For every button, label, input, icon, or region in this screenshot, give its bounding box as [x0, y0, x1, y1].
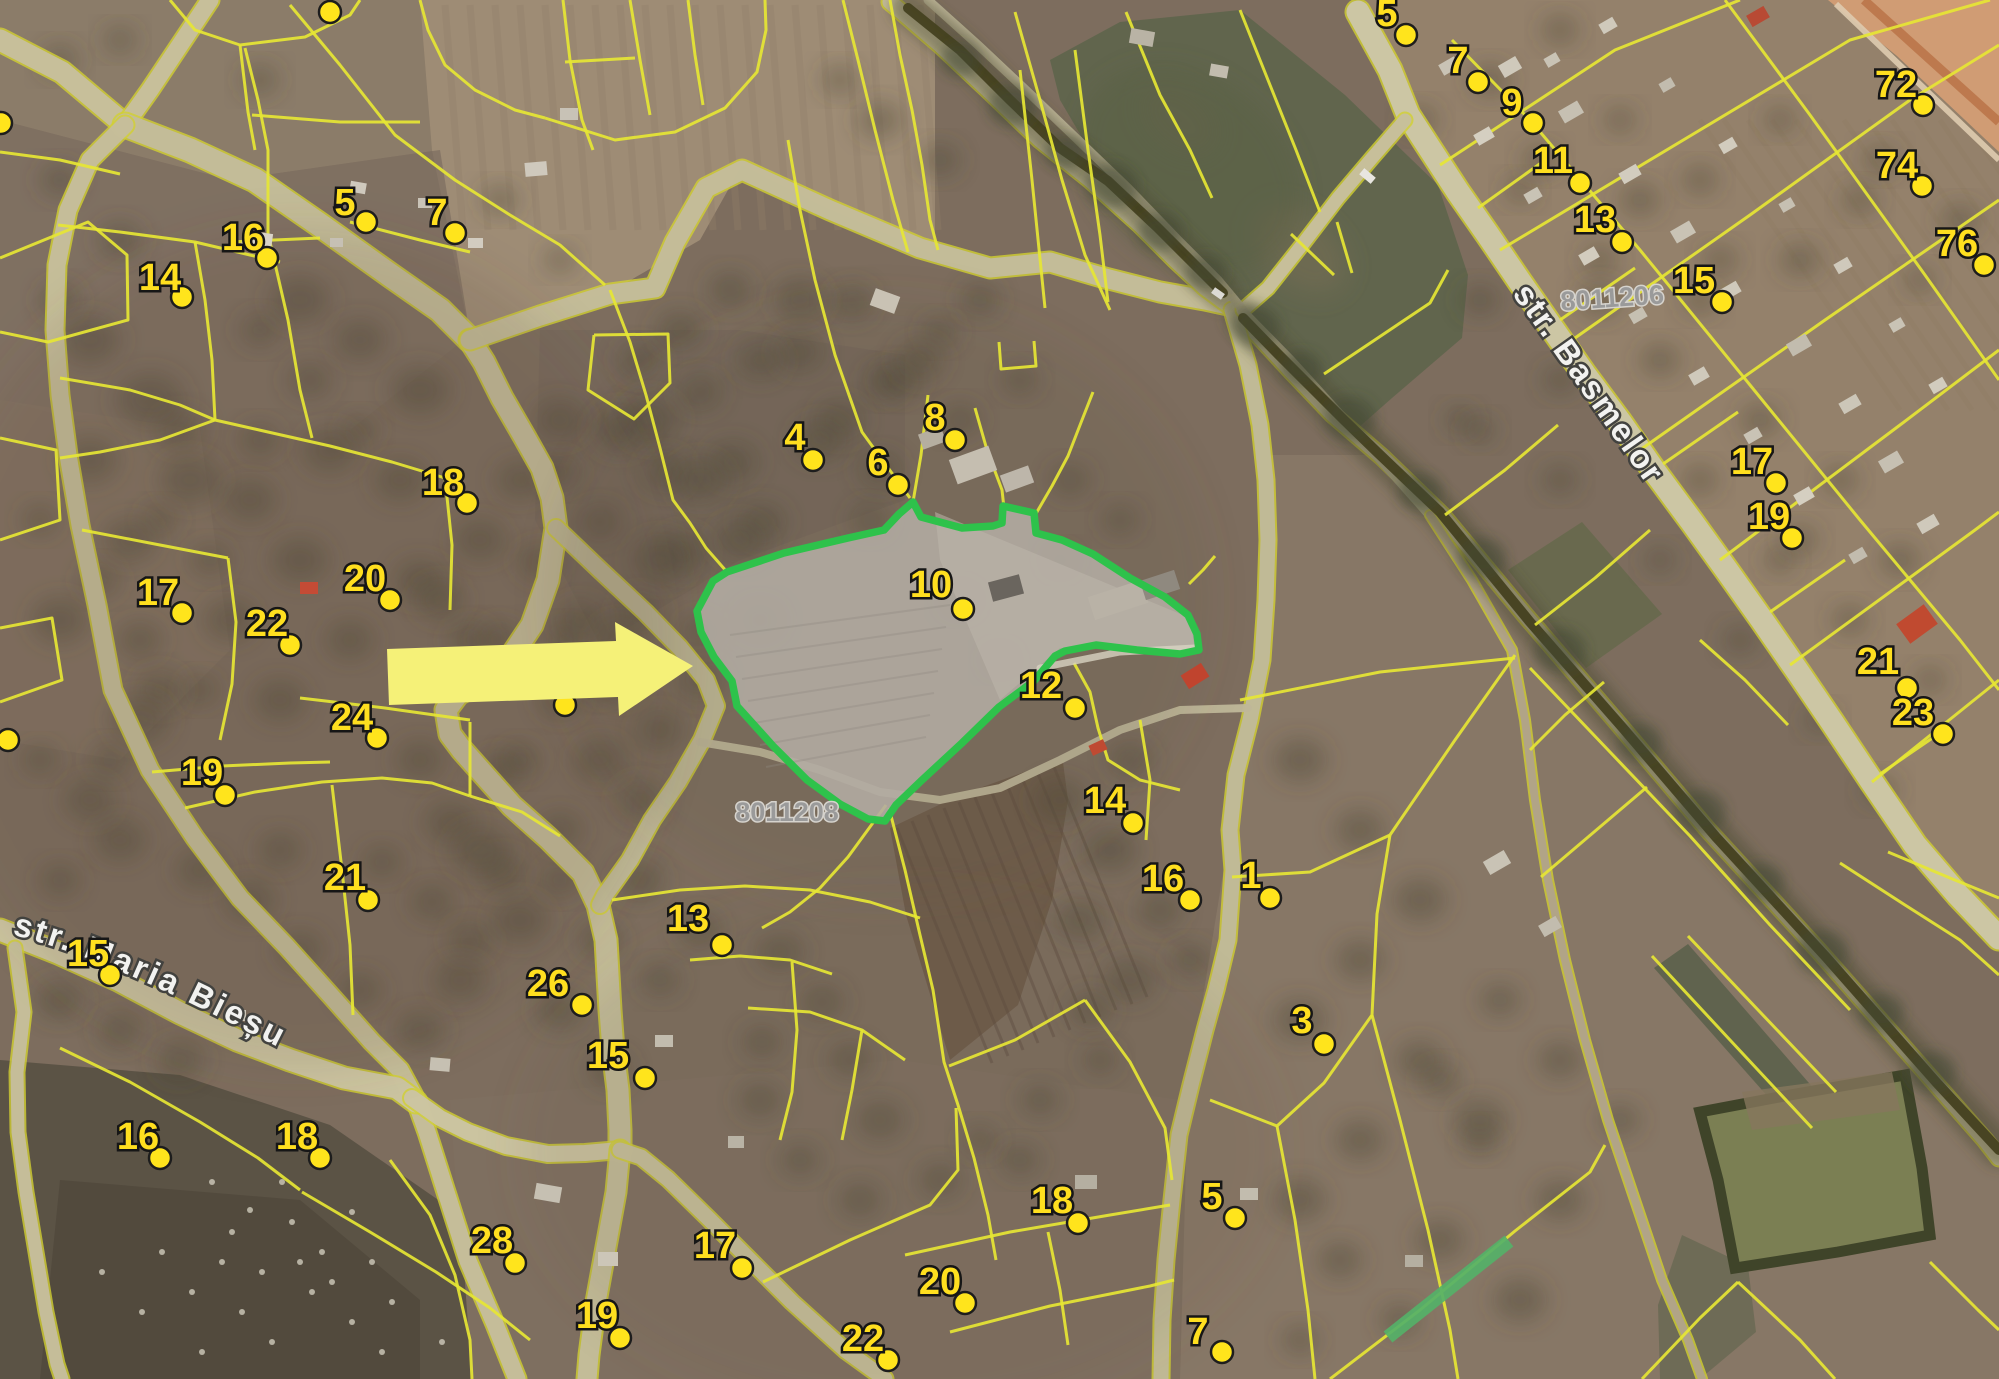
- svg-text:17: 17: [694, 1225, 736, 1267]
- svg-text:10: 10: [910, 564, 952, 606]
- svg-text:20: 20: [919, 1261, 961, 1303]
- svg-text:9: 9: [1501, 82, 1522, 124]
- svg-text:8011208: 8011208: [735, 797, 839, 827]
- svg-text:13: 13: [1574, 199, 1616, 241]
- svg-text:3: 3: [1291, 1000, 1312, 1042]
- svg-text:74: 74: [1876, 145, 1918, 187]
- svg-text:7: 7: [1447, 40, 1468, 82]
- svg-text:8: 8: [924, 397, 945, 439]
- svg-text:5: 5: [1376, 0, 1397, 35]
- svg-text:18: 18: [422, 462, 464, 504]
- svg-text:19: 19: [181, 752, 223, 794]
- svg-text:16: 16: [117, 1116, 159, 1158]
- svg-text:28: 28: [471, 1220, 513, 1262]
- svg-text:72: 72: [1875, 64, 1917, 106]
- svg-text:16: 16: [222, 217, 264, 259]
- svg-text:24: 24: [331, 697, 373, 739]
- svg-text:21: 21: [324, 857, 366, 899]
- svg-text:19: 19: [1748, 496, 1790, 538]
- svg-text:18: 18: [1031, 1180, 1073, 1222]
- svg-text:22: 22: [842, 1318, 884, 1360]
- svg-text:17: 17: [1731, 441, 1773, 483]
- svg-text:21: 21: [1857, 641, 1899, 683]
- svg-text:11: 11: [1533, 140, 1573, 182]
- svg-text:14: 14: [1084, 780, 1126, 822]
- svg-text:4: 4: [784, 417, 805, 459]
- svg-text:6: 6: [867, 442, 888, 484]
- svg-text:7: 7: [1187, 1311, 1208, 1353]
- svg-text:19: 19: [576, 1295, 618, 1337]
- svg-text:14: 14: [139, 257, 181, 299]
- svg-text:76: 76: [1936, 223, 1978, 265]
- svg-text:17: 17: [137, 572, 179, 614]
- svg-text:5: 5: [334, 182, 355, 224]
- svg-text:7: 7: [426, 192, 447, 234]
- svg-text:22: 22: [246, 603, 288, 645]
- svg-text:15: 15: [587, 1035, 629, 1077]
- svg-text:15: 15: [67, 933, 109, 975]
- svg-text:15: 15: [1673, 260, 1715, 302]
- svg-text:12: 12: [1020, 665, 1062, 707]
- svg-text:18: 18: [276, 1116, 318, 1158]
- svg-text:13: 13: [667, 898, 709, 940]
- svg-text:1: 1: [1240, 855, 1261, 897]
- svg-text:16: 16: [1142, 858, 1184, 900]
- svg-text:23: 23: [1892, 692, 1934, 734]
- svg-text:5: 5: [1201, 1176, 1222, 1218]
- svg-text:20: 20: [344, 558, 386, 600]
- svg-text:26: 26: [527, 963, 569, 1005]
